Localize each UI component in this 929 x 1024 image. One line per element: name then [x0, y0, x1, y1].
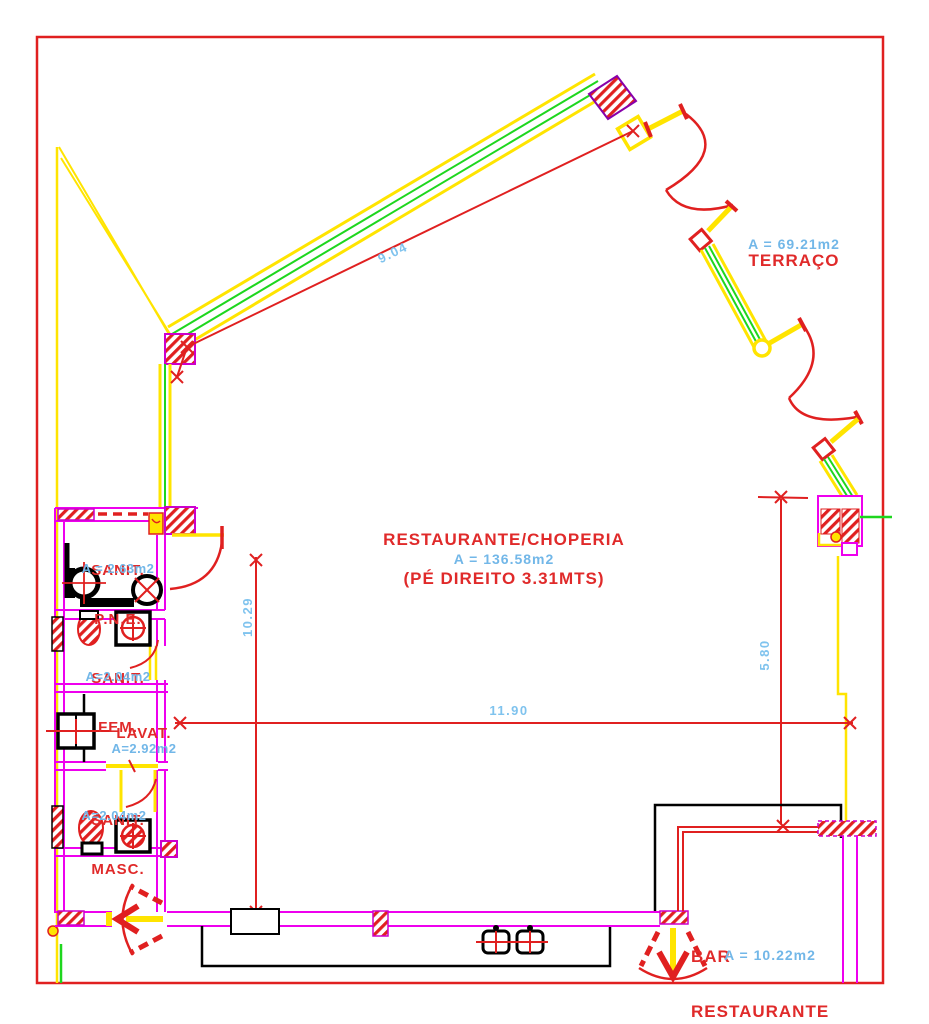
sanit-masc-line2: MASC. [70, 862, 166, 878]
room-label-restaurante: RESTAURANTE/CHOPERIA [358, 531, 650, 549]
north-diagonal-wall [160, 74, 650, 508]
dimension-label-right-vertical: 5.80 [758, 621, 772, 689]
dimension-label-left-vertical: 10.29 [241, 583, 255, 651]
room-area-restaurante: A = 136.58m2 [358, 552, 650, 567]
room-label-bar: BAR RESTAURANTE [691, 911, 856, 1024]
south-wall [55, 909, 688, 936]
room-area-terraco: A = 69.21m2 [738, 237, 850, 252]
room-label-sanit-pne: SANIT. P.N.E. [70, 531, 166, 644]
room-area-sanit-masc: A=2.04m2 [62, 809, 166, 823]
floor-plan-canvas: TERRAÇO A = 69.21m2 RESTAURANTE/CHOPERIA… [0, 0, 929, 1024]
right-pier-box [818, 496, 892, 824]
terrace-edge-doors [645, 104, 862, 501]
dimension-label-bottom: 11.90 [474, 704, 544, 718]
terraco-name: TERRAÇO [738, 252, 850, 270]
room-label-lavat: LAVAT. [96, 726, 192, 742]
bar-line2: RESTAURANTE [691, 1003, 856, 1021]
room-label-sanit-masc: SANIT. MASC. [70, 781, 166, 894]
room-area-lavat: A=2.92m2 [92, 742, 196, 756]
room-area-sanit-pne: A = 2.63m2 [66, 562, 170, 576]
room-area-sanit-fem: A=2.04m2 [66, 670, 170, 684]
sanit-pne-line2: P.N.E. [70, 612, 166, 628]
room-area-bar: A = 10.22m2 [700, 948, 840, 963]
room-note-restaurante: (PÉ DIREITO 3.31MTS) [358, 570, 650, 588]
